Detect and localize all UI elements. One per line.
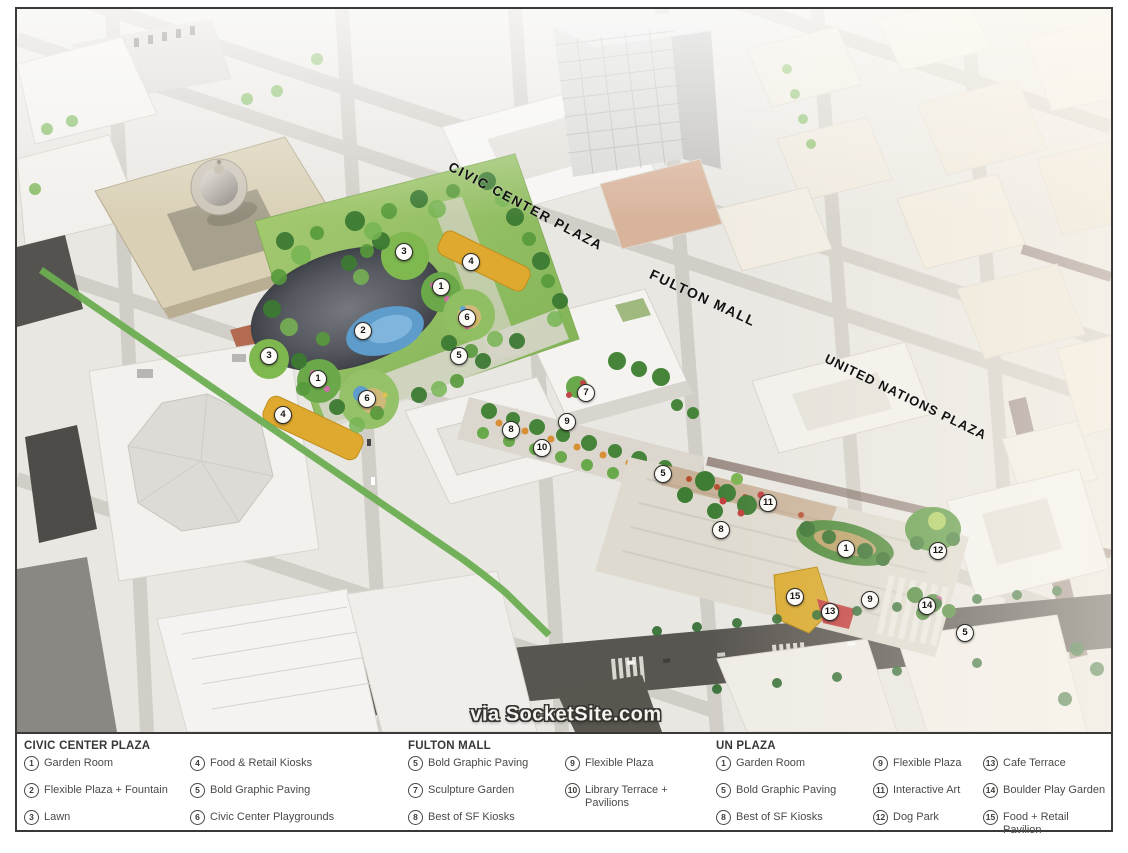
legend-item-number: 6 [190, 810, 205, 825]
map-marker-2: 2 [354, 322, 372, 340]
map-marker-11: 11 [759, 494, 777, 512]
map-marker-5: 5 [654, 465, 672, 483]
legend-item-label: Bold Graphic Paving [428, 756, 528, 770]
legend-item-label: Garden Room [44, 756, 113, 770]
legend-item: 8Best of SF Kiosks [716, 810, 836, 829]
aerial-scene-illustration [17, 9, 1111, 732]
legend-item: 15Food + Retail Pavilion [983, 810, 1105, 829]
map-marker-10: 10 [533, 439, 551, 457]
legend-item-number: 12 [873, 810, 888, 825]
legend-item-number: 15 [983, 810, 998, 825]
legend-item-label: Best of SF Kiosks [736, 810, 823, 824]
legend-item-number: 4 [190, 756, 205, 771]
legend-column: 5Bold Graphic Paving7Sculpture Garden8Be… [408, 756, 528, 837]
map-marker-5: 5 [450, 347, 468, 365]
legend-item-label: Bold Graphic Paving [210, 783, 310, 797]
legend-section-civic-center-plaza: CIVIC CENTER PLAZA 1Garden Room2Flexible… [24, 740, 408, 828]
legend-item: 3Lawn [24, 810, 168, 829]
map-marker-15: 15 [786, 588, 804, 606]
legend: CIVIC CENTER PLAZA 1Garden Room2Flexible… [17, 732, 1111, 828]
map-marker-4: 4 [462, 253, 480, 271]
legend-item-number: 2 [24, 783, 39, 798]
map-marker-6: 6 [458, 309, 476, 327]
map-marker-1: 1 [432, 278, 450, 296]
legend-item-label: Flexible Plaza [585, 756, 653, 770]
legend-item-number: 5 [190, 783, 205, 798]
legend-item-number: 8 [408, 810, 423, 825]
legend-item: 6Civic Center Playgrounds [190, 810, 334, 829]
legend-column: 4Food & Retail Kiosks5Bold Graphic Pavin… [190, 756, 334, 837]
legend-item-number: 9 [565, 756, 580, 771]
legend-item-number: 1 [24, 756, 39, 771]
watermark: via SocketSite.com [470, 704, 661, 727]
legend-section-fulton-mall: FULTON MALL 5Bold Graphic Paving7Sculptu… [408, 740, 716, 828]
legend-item: 2Flexible Plaza + Fountain [24, 783, 168, 802]
legend-item-number: 8 [716, 810, 731, 825]
legend-item-label: Cafe Terrace [1003, 756, 1066, 770]
legend-item-label: Flexible Plaza + Fountain [44, 783, 168, 797]
legend-item: 4Food & Retail Kiosks [190, 756, 334, 775]
legend-item-label: Civic Center Playgrounds [210, 810, 334, 824]
legend-item-label: Sculpture Garden [428, 783, 514, 797]
legend-section-title: FULTON MALL [408, 740, 491, 752]
legend-item-number: 13 [983, 756, 998, 771]
map-marker-14: 14 [918, 597, 936, 615]
map-marker-4: 4 [274, 406, 292, 424]
legend-column: 13Cafe Terrace14Boulder Play Garden15Foo… [983, 756, 1105, 837]
legend-item-label: Garden Room [736, 756, 805, 770]
legend-item-label: Boulder Play Garden [1003, 783, 1105, 797]
map-marker-9: 9 [558, 413, 576, 431]
legend-section-title: UN PLAZA [716, 740, 776, 752]
light-wash-right [711, 9, 1111, 732]
map-marker-5: 5 [956, 624, 974, 642]
legend-item: 10Library Terrace + Pavilions [565, 783, 685, 802]
map-marker-7: 7 [577, 384, 595, 402]
map-marker-1: 1 [309, 370, 327, 388]
legend-column: 1Garden Room5Bold Graphic Paving8Best of… [716, 756, 836, 837]
map-marker-3: 3 [395, 243, 413, 261]
legend-item-label: Interactive Art [893, 783, 960, 797]
legend-item-number: 11 [873, 783, 888, 798]
legend-item-label: Flexible Plaza [893, 756, 961, 770]
map-marker-9: 9 [861, 591, 879, 609]
legend-item-label: Lawn [44, 810, 70, 824]
legend-item-label: Best of SF Kiosks [428, 810, 515, 824]
legend-item: 7Sculpture Garden [408, 783, 528, 802]
auditorium [89, 339, 319, 581]
legend-item-number: 5 [408, 756, 423, 771]
legend-item: 5Bold Graphic Paving [716, 783, 836, 802]
legend-item: 5Bold Graphic Paving [190, 783, 334, 802]
legend-item-label: Bold Graphic Paving [736, 783, 836, 797]
legend-item: 9Flexible Plaza [873, 756, 961, 775]
map-marker-6: 6 [358, 390, 376, 408]
map-marker-8: 8 [502, 421, 520, 439]
legend-item: 14Boulder Play Garden [983, 783, 1105, 802]
legend-column: 1Garden Room2Flexible Plaza + Fountain3L… [24, 756, 168, 837]
legend-item-number: 3 [24, 810, 39, 825]
legend-item-number: 9 [873, 756, 888, 771]
legend-item: 1Garden Room [24, 756, 168, 775]
image-frame: CIVIC CENTER PLAZAFULTON MALLUNITED NATI… [15, 7, 1113, 832]
legend-item: 1Garden Room [716, 756, 836, 775]
map-marker-13: 13 [821, 603, 839, 621]
legend-column: 9Flexible Plaza11Interactive Art12Dog Pa… [873, 756, 961, 837]
legend-item-number: 5 [716, 783, 731, 798]
legend-item-number: 10 [565, 783, 580, 798]
legend-item: 12Dog Park [873, 810, 961, 829]
legend-column: 9Flexible Plaza10Library Terrace + Pavil… [565, 756, 685, 810]
legend-item-label: Food & Retail Kiosks [210, 756, 312, 770]
legend-item: 11Interactive Art [873, 783, 961, 802]
legend-item-label: Dog Park [893, 810, 939, 824]
map-marker-3: 3 [260, 347, 278, 365]
aerial-rendering: CIVIC CENTER PLAZAFULTON MALLUNITED NATI… [17, 9, 1111, 732]
legend-section-un-plaza: UN PLAZA 1Garden Room5Bold Graphic Pavin… [716, 740, 1108, 828]
legend-item: 9Flexible Plaza [565, 756, 685, 775]
legend-item: 5Bold Graphic Paving [408, 756, 528, 775]
legend-item: 13Cafe Terrace [983, 756, 1105, 775]
legend-item-number: 7 [408, 783, 423, 798]
map-marker-8: 8 [712, 521, 730, 539]
legend-item-number: 1 [716, 756, 731, 771]
legend-section-title: CIVIC CENTER PLAZA [24, 740, 150, 752]
legend-item-label: Food + Retail Pavilion [1003, 810, 1103, 836]
legend-item: 8Best of SF Kiosks [408, 810, 528, 829]
map-marker-12: 12 [929, 542, 947, 560]
legend-item-label: Library Terrace + Pavilions [585, 783, 685, 809]
legend-item-number: 14 [983, 783, 998, 798]
map-marker-1: 1 [837, 540, 855, 558]
